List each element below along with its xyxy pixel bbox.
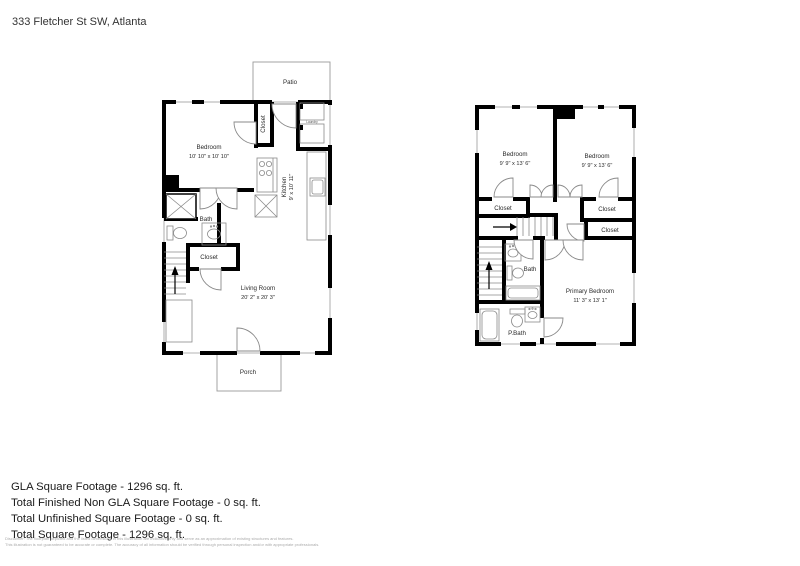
- disclaimer-line-2: This illustration is not guaranteed to b…: [5, 542, 319, 548]
- closet-left-label: Closet: [494, 205, 512, 212]
- property-address: 333 Fletcher St SW, Atlanta: [12, 16, 147, 28]
- bedroom-label: Bedroom: [196, 144, 221, 151]
- patio-label: Patio: [283, 79, 298, 86]
- bedroom-right-dims: 9' 9" x 13' 6": [582, 163, 613, 169]
- bedroom-left-dims: 9' 9" x 13' 6": [500, 161, 531, 167]
- non-gla-square-footage: Total Finished Non GLA Square Footage - …: [11, 495, 261, 511]
- disclaimer-line-1: Disclaimer: The floorplan depicted and t…: [5, 536, 319, 542]
- closet-right-upper-label: Closet: [598, 206, 616, 213]
- second-floor-plan: Bedroom 9' 9" x 13' 6" Bedroom 9' 9" x 1…: [473, 103, 638, 348]
- laundry-label: Laundry: [306, 120, 318, 124]
- primary-bedroom-label: Primary Bedroom: [566, 288, 614, 295]
- closet-upper-label: Closet: [260, 115, 267, 133]
- gla-square-footage: GLA Square Footage - 1296 sq. ft.: [11, 479, 261, 495]
- bath-label: Bath: [524, 266, 537, 273]
- pbath-label: P.Bath: [508, 330, 526, 337]
- chimney: [555, 105, 575, 119]
- kitchen-dims: 9' x 10' 11": [289, 174, 295, 201]
- living-room-dims: 20' 2" x 20' 3": [241, 295, 275, 301]
- closet-lower-label: Closet: [200, 254, 218, 261]
- porch-label: Porch: [240, 369, 257, 376]
- bedroom-dims: 10' 10" x 10' 10": [189, 154, 229, 160]
- floorplan-page: 333 Fletcher St SW, Atlanta: [0, 0, 800, 566]
- primary-bedroom-dims: 11' 3" x 13' 1": [573, 298, 606, 304]
- living-room-label: Living Room: [241, 285, 275, 292]
- closet-right-lower-label: Closet: [601, 227, 619, 234]
- bedroom-left-label: Bedroom: [502, 151, 527, 158]
- kitchen-label: Kitchen: [281, 176, 288, 197]
- square-footage-summary: GLA Square Footage - 1296 sq. ft. Total …: [11, 479, 261, 543]
- unfinished-square-footage: Total Unfinished Square Footage - 0 sq. …: [11, 511, 261, 527]
- bedroom-right-label: Bedroom: [584, 153, 609, 160]
- first-floor-plan: Patio Porch Bedroom 10' 10" x 10' 10" Cl…: [162, 60, 332, 395]
- bath-label: Bath: [200, 216, 213, 223]
- fireplace: [164, 175, 179, 189]
- disclaimer: Disclaimer: The floorplan depicted and t…: [5, 536, 319, 547]
